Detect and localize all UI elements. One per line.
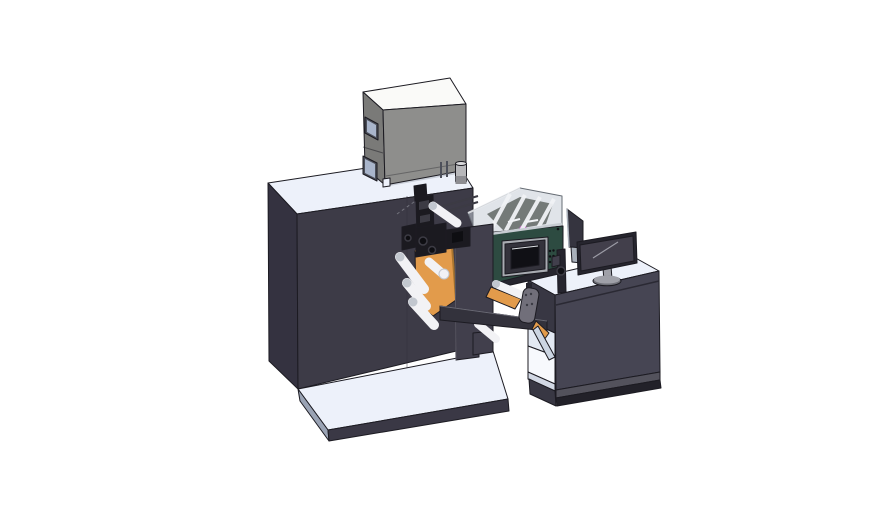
cabinet-left-side [268,183,298,389]
cad-render-stage [0,0,888,522]
hmi-button[interactable] [549,250,551,252]
box-corner-label [383,178,390,187]
hmi-button[interactable] [549,255,551,257]
hmi-button[interactable] [552,249,554,251]
roller-end-cap [396,253,405,262]
roller-end-cap [403,279,412,288]
side-tab [552,255,560,267]
bracket-hole [525,294,527,296]
side-knob [557,267,565,275]
monitor-base [594,276,620,284]
mech-arm-window [452,231,463,243]
roller-end-cap [409,298,418,307]
bracket-hole [530,293,532,295]
mech-bearing [429,247,436,254]
machine-render [0,0,888,522]
mech-bearing [405,235,411,241]
electrical-box [363,78,467,187]
hmi-button[interactable] [549,261,551,263]
roller-end-cap [492,280,500,288]
mech-bearing [419,237,427,245]
roller-end-cap [429,202,437,210]
roller-end-face [439,269,449,279]
panel-screw [557,228,560,231]
bracket-hole [526,304,528,306]
signal-cylinder-cap [456,162,467,166]
signal-cylinder-band [456,176,467,184]
bracket-hole [531,303,533,305]
